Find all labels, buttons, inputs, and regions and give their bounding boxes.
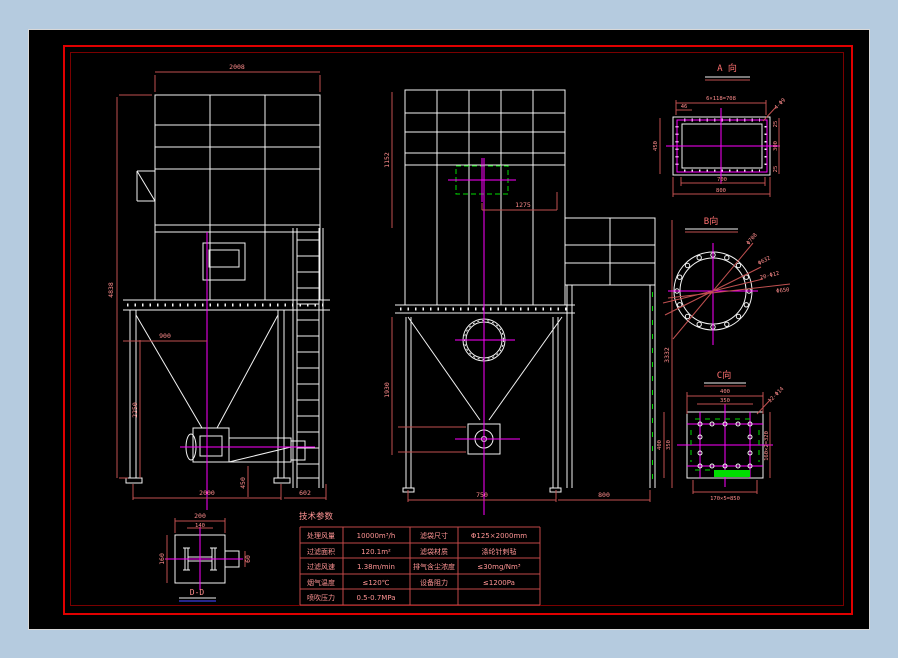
detail-b-title: B向 (704, 215, 718, 227)
section-d-title: D-D (190, 588, 205, 597)
cell-value: Φ125×2000mm (471, 532, 527, 540)
cell-label: 排气含尘浓度 (413, 562, 455, 571)
dim-valve-height: 450 (239, 477, 247, 489)
dim-d-left: 160 (158, 553, 166, 565)
dim-a-right-top: 25 (773, 121, 779, 128)
detail-b-round-flange: B向 Φ708 Φ632 20-Φ12 Φ650 (663, 215, 790, 345)
detail-c-dimensions: 400 350 12-Φ14 400 350 160×2=320 170×5=8… (657, 386, 786, 502)
dim-total-height: 4838 (107, 282, 115, 298)
dim-c-left-outer: 400 (657, 440, 663, 450)
left-side-view: 2008 4838 2250 900 450 2000 602 (107, 63, 330, 510)
cell-label: 处理风量 (307, 531, 335, 540)
front-view: 1275 1152 1930 3332 750 800 (383, 90, 672, 515)
dim-bottom-width: 2000 (199, 489, 215, 497)
dim-b-inner: Φ632 (757, 255, 772, 267)
dim-a-right-bottom: 25 (773, 166, 779, 173)
cell-label: 过滤风速 (307, 562, 335, 571)
dim-c-top-inner: 350 (720, 398, 730, 404)
dim-front-bottom-width: 750 (476, 491, 488, 499)
cell-label: 设备阻力 (420, 578, 448, 587)
cell-value: 涤纶针刺毡 (482, 547, 517, 556)
detail-a-title: A 向 (717, 62, 737, 74)
dim-c-top-outer: 400 (720, 389, 730, 395)
cell-value: ≤120℃ (362, 579, 389, 587)
cell-label: 滤袋尺寸 (420, 531, 448, 540)
detail-a-rect-flange: A 向 46 6×118=708 4-Φ9 450 25 300 25 700 … (653, 62, 787, 197)
dim-a-holes: 4-Φ9 (773, 97, 787, 111)
cell-label: 过滤面积 (307, 547, 335, 556)
dim-d-right: 60 (244, 555, 252, 563)
cell-label: 喷吹压力 (307, 593, 335, 602)
cell-value: ≤30mg/Nm³ (477, 563, 520, 571)
dim-d-inner: 140 (195, 523, 205, 529)
section-d-dimensions: 200 140 160 60 (158, 512, 252, 583)
table-row: 处理风量 10000m³/h 滤袋尺寸 Φ125×2000mm (307, 531, 527, 540)
access-ladder (293, 228, 323, 488)
table-row: 喷吹压力 0.5-0.7MPa (307, 593, 396, 602)
dim-c-bottom: 170×5=850 (710, 496, 740, 502)
dim-a-bottom-inner: 700 (717, 177, 727, 183)
cell-label: 滤袋材质 (420, 547, 448, 556)
detail-c-title: C向 (717, 369, 731, 381)
dim-hopper-height: 2250 (131, 402, 139, 418)
dim-c-left-inner: 350 (666, 440, 672, 450)
dim-hopper-width: 900 (159, 332, 171, 340)
cell-value: ≤1200Pa (483, 579, 515, 587)
cell-value: 0.5-0.7MPa (356, 594, 395, 602)
table-row: 过滤风速 1.38m/min 排气含尘浓度 ≤30mg/Nm³ (307, 562, 521, 571)
spec-table-title: 技术参数 (299, 511, 334, 522)
dim-support-width: 800 (598, 491, 610, 499)
dim-inlet-offset: 1275 (515, 201, 531, 209)
detail-c-square-flange: C向 400 350 12-Φ14 (657, 369, 786, 502)
dim-c-right: 160×2=320 (764, 431, 770, 461)
dim-b-bolt-circle: Φ650 (776, 287, 790, 294)
section-d-d: 200 140 160 60 D-D (158, 512, 252, 601)
support-platform (565, 218, 655, 488)
detail-b-dimensions: Φ708 Φ632 20-Φ12 Φ650 (663, 232, 790, 339)
dim-top-width: 2008 (229, 63, 245, 71)
cell-label: 烟气温度 (307, 578, 335, 587)
cell-value: 120.1m² (361, 548, 391, 556)
dim-lower-height: 1930 (383, 382, 391, 398)
dim-b-holes: 20-Φ12 (759, 271, 780, 282)
drawing-sheet: 2008 4838 2250 900 450 2000 602 (0, 0, 898, 658)
dim-a-left: 450 (653, 141, 659, 151)
dim-c-holes: 12-Φ14 (767, 386, 786, 405)
cell-value: 10000m³/h (357, 532, 396, 540)
dim-a-pitch: 6×118=708 (706, 96, 736, 102)
table-row: 过滤面积 120.1m² 滤袋材质 涤纶针刺毡 (307, 547, 517, 556)
spec-table: 技术参数 处理风量 10000m³/h 滤袋尺寸 Φ125×2000mm 过滤面… (299, 511, 540, 605)
table-row: 烟气温度 ≤120℃ 设备阻力 ≤1200Pa (307, 578, 515, 587)
dim-upper-height: 1152 (383, 152, 391, 168)
dim-d-top: 200 (194, 512, 206, 520)
dim-ladder-offset: 602 (299, 489, 311, 497)
cad-drawing-page: 2008 4838 2250 900 450 2000 602 (0, 0, 898, 658)
dim-a-bottom-outer: 800 (716, 188, 726, 194)
dim-right-height: 3332 (663, 347, 671, 363)
cell-value: 1.38m/min (357, 563, 395, 571)
dim-a-edge: 46 (681, 104, 688, 110)
dim-a-right-mid: 300 (773, 141, 779, 151)
